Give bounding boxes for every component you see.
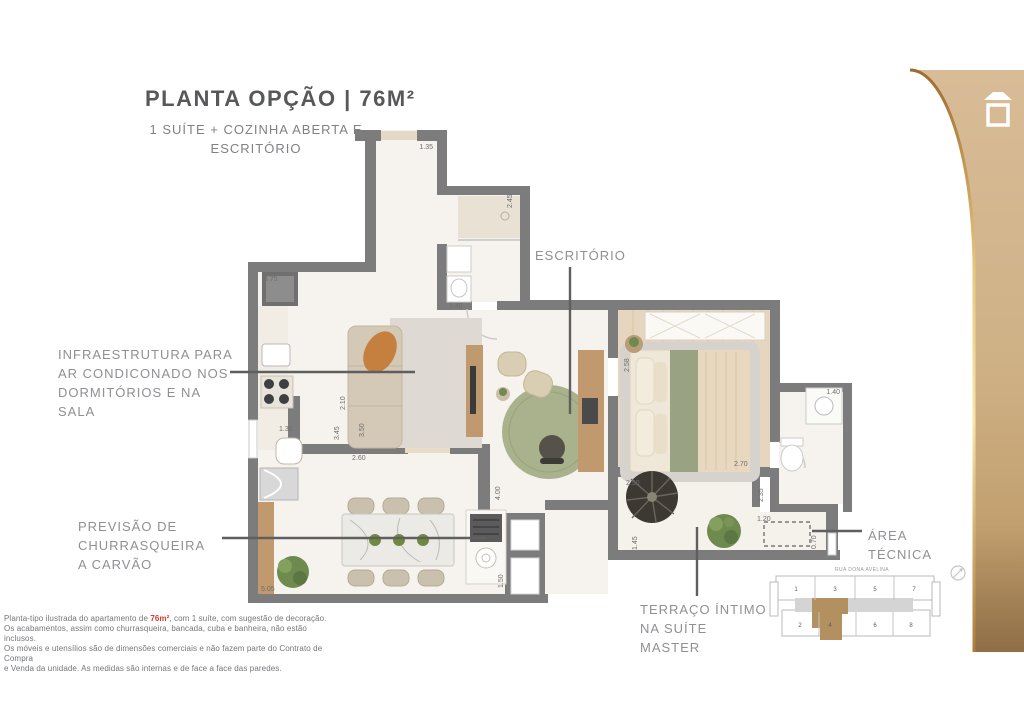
dim-living-w: 2.60 [352,455,366,462]
brochure-page: 1.35 2.45 3.75 1.40 1.30 2.10 3.45 3.50 … [0,0,1024,724]
bed [630,350,750,472]
tv-console [466,345,483,437]
dim-bath1-h: 2.45 [507,194,514,208]
label-previsao-churrasqueira: PREVISÃO DE CHURRASQUEIRA A CARVÃO [78,517,248,574]
kitchen-basin [276,438,302,464]
sofa [348,326,404,448]
bowl-3 [417,534,429,546]
subtitle-line-2: ESCRITÓRIO [118,139,394,158]
window-right [828,533,836,555]
dim-bed-w: 2.70 [734,461,748,468]
bowl-2 [393,534,405,546]
kitchen-appliance [260,468,298,500]
dim-terr-c: 1.20 [757,516,771,523]
suite-basin [815,397,833,415]
tv [470,366,476,414]
plant-small [499,388,507,396]
dim-living-a: 2.10 [340,396,347,410]
compass-icon [951,566,965,580]
keyplan-street-label: RUA DONA AVELINA [835,567,889,573]
pillow-1 [636,358,654,404]
dim-bath2-w: 1.40 [826,389,840,396]
subtitle-line-1: 1 SUÍTE + COZINHA ABERTA E [118,120,394,139]
disclaimer-area-highlight: 76m² [150,614,169,623]
wood-bench [258,502,274,594]
label-infraestrutura-ac: INFRAESTRUTURA PARA AR CONDICONADO NOS D… [58,345,258,421]
toilet [781,438,803,471]
kitchen-sink [262,344,290,366]
grill-basin [476,548,496,568]
dim-terr-d: 0.70 [811,535,818,549]
dim-kitchen-counter: 3.75 [264,276,278,283]
disclaimer-line-3: Os móveis e utensílios são de dimensões … [4,644,334,664]
label-terraco-intimo: TERRAÇO ÍNTIMO NA SUÍTE MASTER [640,600,800,657]
pillow-2 [636,410,654,456]
living-room [348,318,483,448]
armchair-1 [498,352,526,376]
dim-bed-a: 2.58 [624,358,631,372]
sage-runner [670,350,698,472]
window-left [249,420,257,458]
dim-living-c: 3.50 [359,423,366,437]
dim-bath1-w: 1.40 [449,303,463,310]
plant-nightstand [629,337,639,347]
bowl-1 [369,534,381,546]
dim-terr-b: 2.35 [758,488,765,502]
dim-terr-a: 2.50 [626,480,640,487]
dining-plant [277,556,309,588]
desk-chair [539,435,565,461]
dim-churras-h: 1.50 [498,574,505,588]
label-escritorio: ESCRITÓRIO [535,246,626,265]
disclaimer-line-4: e Venda da unidade. As medidas são inter… [4,664,334,674]
page-subtitle: 1 SUÍTE + COZINHA ABERTA E ESCRITÓRIO [118,120,394,158]
dim-kitchen-w: 1.30 [279,426,293,433]
dim-entry: 1.35 [419,144,433,151]
side-panel [910,70,1024,652]
dim-dining-w: 5.05 [261,586,275,593]
dining-table [342,514,454,566]
wardrobe [645,312,765,340]
label-area-tecnica: ÁREA TÉCNICA [868,526,932,564]
terrace-plant [707,514,741,548]
dim-office-h: 4.00 [495,486,502,500]
spiral-staircase [626,471,678,523]
dim-living-b: 3.45 [334,426,341,440]
churrasqueira [466,510,506,584]
disclaimer-line-2: Os acabamentos, assim como churrasqueira… [4,624,334,644]
laptop [582,398,598,424]
stove [261,376,293,408]
page-title: PLANTA OPÇÃO | 76M² [145,86,416,112]
vanity-1 [447,246,471,272]
side-panel-background [910,70,1024,652]
disclaimer: Planta-tipo ilustrada do apartamento de … [4,614,334,674]
gold-curve [910,70,974,652]
disclaimer-line-1: Planta-tipo ilustrada do apartamento de … [4,614,334,624]
dim-terr-e: 1.45 [632,536,639,550]
